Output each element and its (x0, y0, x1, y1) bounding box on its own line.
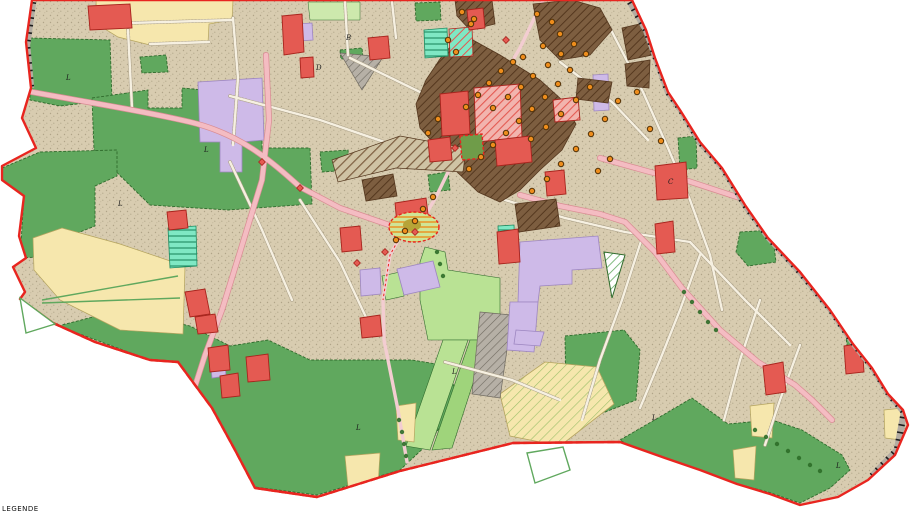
svg-text:L: L (355, 424, 361, 432)
svg-text:L: L (117, 200, 123, 208)
svg-text:L: L (451, 368, 457, 376)
svg-text:C: C (668, 178, 674, 186)
svg-text:B: B (345, 34, 351, 42)
commune-interior: LLLLLLLCDB (0, 0, 920, 516)
map-caption: LEGENDE (2, 505, 39, 516)
svg-text:L: L (203, 146, 209, 154)
zoning-map-viewport: LLLLLLLCDB LEGENDE (0, 0, 920, 516)
zoning-map-canvas[interactable]: LLLLLLLCDB (0, 0, 920, 516)
svg-text:D: D (315, 64, 322, 72)
svg-text:L: L (65, 74, 71, 82)
excluded-parcel-south (527, 447, 570, 483)
svg-text:L: L (651, 414, 657, 422)
svg-text:L: L (835, 462, 841, 470)
